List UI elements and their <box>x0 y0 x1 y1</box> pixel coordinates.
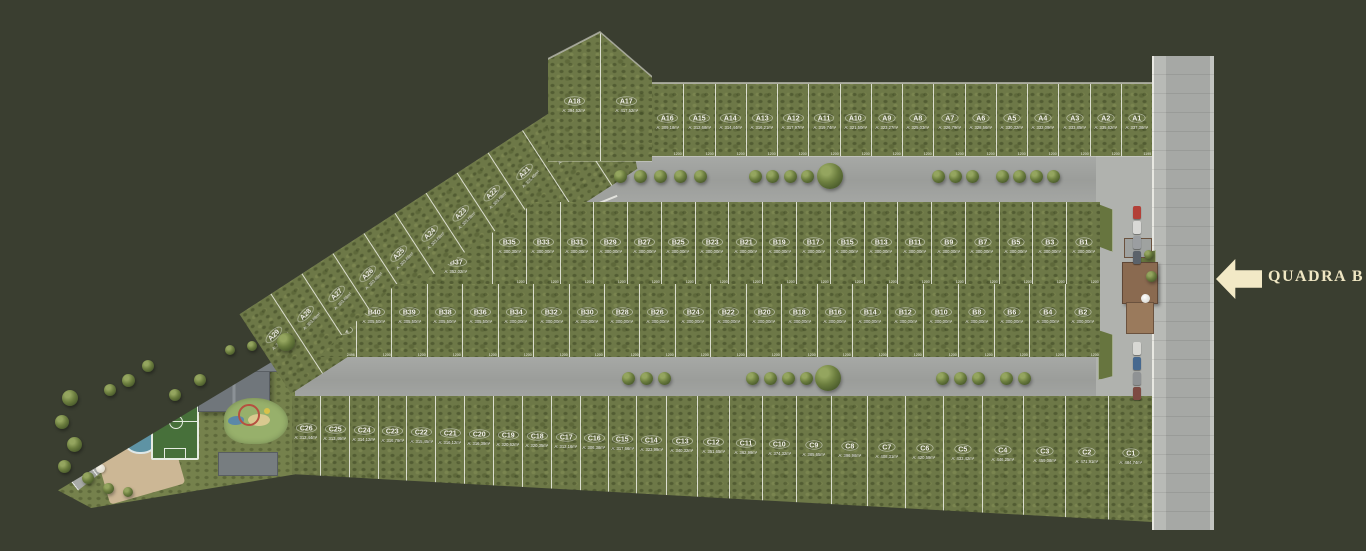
lot-frontage-dimension: 1200 <box>453 353 461 357</box>
lot-area: A: 332,09m² <box>1032 125 1055 130</box>
lot-code: A8 <box>910 113 927 122</box>
lot-area: A: 323,27m² <box>876 125 899 130</box>
lot-code: B25 <box>668 237 689 246</box>
lot-area: A: 300,00m² <box>903 249 926 254</box>
lot-code: B29 <box>600 237 621 246</box>
lot-frontage-dimension: 1200 <box>737 152 745 156</box>
lot-C24[interactable]: C24A: 314,12m² <box>349 396 378 522</box>
lot-area: A: 300,00m² <box>1038 249 1061 254</box>
lot-code: C23 <box>382 426 403 435</box>
tree-icon <box>764 372 777 385</box>
lot-frontage-dimension: 1200 <box>418 353 426 357</box>
tree-icon <box>103 483 114 494</box>
lot-area: A: 300,00m² <box>836 249 859 254</box>
lot-B36[interactable]: B36A: 305,50m²1200 <box>462 284 497 357</box>
lot-B24[interactable]: B24A: 300,00m²12002500 <box>675 284 710 357</box>
lot-code: C11 <box>736 438 756 447</box>
lot-B25[interactable]: B25A: 300,00m²12002500 <box>661 202 695 284</box>
lot-code: C18 <box>527 431 548 440</box>
lot-code: C19 <box>498 430 519 439</box>
c-row-band: C26A: 312,44m²C25A: 313,46m²C24A: 314,12… <box>292 396 1152 522</box>
lot-code: A6 <box>972 113 989 122</box>
lot-B38[interactable]: B38A: 305,50m²1200 <box>427 284 462 357</box>
a-bend-band: A18A: 394,52m²A17A: 417,52m² <box>548 33 652 161</box>
lot-B1[interactable]: B1A: 300,00m²12002500 <box>1066 202 1100 284</box>
lot-frontage-dimension: 1200 <box>987 152 995 156</box>
lot-area: A: 374,32m² <box>768 451 791 456</box>
lot-area: A: 303,68m² <box>364 271 383 290</box>
gatehouse-annex-roof <box>1126 302 1154 334</box>
lot-frontage-dimension: 1200 <box>955 152 963 156</box>
lot-area: A: 325,03m² <box>907 125 930 130</box>
lot-C23[interactable]: C23A: 316,79m² <box>378 396 407 522</box>
lot-frontage-dimension: 1200 <box>893 152 901 156</box>
lot-code: C4 <box>995 445 1012 454</box>
lot-B31[interactable]: B31A: 300,00m²12002500 <box>560 202 594 284</box>
tree-icon <box>1030 170 1043 183</box>
lot-area: A: 300,00m² <box>930 319 953 324</box>
lot-B3[interactable]: B3A: 300,00m²12002500 <box>1032 202 1066 284</box>
lot-area: A: 303,68m² <box>488 191 507 210</box>
lot-A11[interactable]: A11A: 319,74m²1200 <box>808 84 839 156</box>
lot-area: A: 312,44m² <box>295 435 318 440</box>
perimeter-road <box>1152 56 1214 530</box>
umbrella <box>104 398 114 408</box>
lot-code: C15 <box>612 434 633 443</box>
lot-frontage-dimension: 1200 <box>768 152 776 156</box>
lot-area: A: 300,00m² <box>1072 249 1095 254</box>
lot-C12[interactable]: C12A: 351,65m² <box>697 396 729 522</box>
lot-code: A9 <box>878 113 895 122</box>
tree-icon <box>996 170 1009 183</box>
lot-area: A: 300,00m² <box>894 319 917 324</box>
lot-code: C12 <box>703 437 724 446</box>
parked-car <box>1133 206 1141 219</box>
tree-icon <box>954 372 967 385</box>
lot-frontage-dimension: 1200 <box>808 353 816 357</box>
lot-frontage-dimension: 1200 <box>719 280 727 284</box>
lot-A18[interactable]: A18A: 394,52m² <box>548 33 600 161</box>
tree-icon <box>58 460 71 473</box>
lot-C21[interactable]: C21A: 316,12m² <box>435 396 464 522</box>
lot-code: B3 <box>1041 237 1058 246</box>
lot-code: B24 <box>683 307 704 316</box>
gatehouse-dome <box>1141 294 1150 303</box>
quadra-b-arrow-icon[interactable] <box>1216 259 1262 299</box>
lot-code: B1 <box>1075 237 1092 246</box>
lot-frontage-dimension: 1200 <box>737 353 745 357</box>
lot-area: A: 337,38m² <box>1126 125 1149 130</box>
lot-frontage-dimension: 1200 <box>799 152 807 156</box>
tree-icon <box>801 170 814 183</box>
lot-frontage-dimension: 1200 <box>489 353 497 357</box>
lot-area: A: 300,00m² <box>599 249 622 254</box>
lot-code: A17 <box>616 96 637 105</box>
lot-B4[interactable]: B4A: 300,00m²12002500 <box>1029 284 1064 357</box>
tree-icon <box>1000 372 1013 385</box>
tree-icon <box>142 360 154 372</box>
parked-car <box>1133 236 1141 249</box>
lot-code: B19 <box>769 237 790 246</box>
lot-A17[interactable]: A17A: 417,52m² <box>600 33 652 161</box>
lot-A7[interactable]: A7A: 326,79m²1200 <box>933 84 964 156</box>
lot-B23[interactable]: B23A: 300,00m²12002500 <box>695 202 729 284</box>
lot-area: A: 300,00m² <box>717 319 740 324</box>
lot-B34[interactable]: B34A: 300,00m²12002500 <box>498 284 533 357</box>
lot-A1[interactable]: A1A: 337,38m²1195 <box>1121 84 1152 156</box>
lot-code: A7 <box>941 113 958 122</box>
lot-code: C9 <box>806 440 823 449</box>
lot-area: A: 420,59m² <box>913 455 936 460</box>
lot-frontage-dimension: 1200 <box>1091 353 1099 357</box>
lot-A16[interactable]: A16A: 309,18m²1200 <box>652 84 683 156</box>
lot-B19[interactable]: B19A: 300,00m²12002500 <box>762 202 796 284</box>
tree-icon <box>800 372 813 385</box>
lot-code: A16 <box>657 113 678 122</box>
lot-B7[interactable]: B7A: 300,00m²12002500 <box>965 202 999 284</box>
lot-C7[interactable]: C7A: 408,31m² <box>867 396 904 522</box>
lot-C6[interactable]: C6A: 420,59m² <box>905 396 943 522</box>
lot-code: B35 <box>499 237 520 246</box>
lot-code: B16 <box>824 307 845 316</box>
lot-A10[interactable]: A10A: 321,50m²1200 <box>840 84 871 156</box>
lot-C17[interactable]: C17A: 312,16m² <box>551 396 579 522</box>
lot-area: A: 300,00m² <box>532 249 555 254</box>
lot-C15[interactable]: C15A: 317,66m² <box>608 396 637 522</box>
lot-area: A: 300,00m² <box>505 319 528 324</box>
lot-code: B4 <box>1039 307 1056 316</box>
lot-A13[interactable]: A13A: 316,21m²1200 <box>746 84 777 156</box>
lot-frontage-dimension: 1200 <box>618 280 626 284</box>
lot-frontage-dimension: 1200 <box>584 280 592 284</box>
lot-B29[interactable]: B29A: 300,00m²12002500 <box>593 202 627 284</box>
lot-area: A: 326,79m² <box>938 125 961 130</box>
lot-B18[interactable]: B18A: 300,00m²12002500 <box>781 284 816 357</box>
lot-area: A: 362,99m² <box>735 450 758 455</box>
lot-frontage-dimension: 1200 <box>701 353 709 357</box>
tree-icon <box>82 472 94 484</box>
lot-area: A: 300,00m² <box>667 249 690 254</box>
lot-C3[interactable]: C3A: 459,08m² <box>1023 396 1065 522</box>
lot-B28[interactable]: B28A: 300,00m²12002500 <box>604 284 639 357</box>
tree-icon <box>62 390 78 406</box>
lot-area: A: 306,38m² <box>583 445 606 450</box>
lot-B12[interactable]: B12A: 300,00m²12002500 <box>887 284 922 357</box>
lot-code: C21 <box>440 428 461 437</box>
lot-area: A: 316,39m² <box>468 441 491 446</box>
lot-code: C20 <box>469 429 490 438</box>
lot-area: A: 396,98m² <box>839 453 862 458</box>
lot-C16[interactable]: C16A: 306,38m² <box>580 396 608 522</box>
tree-icon <box>1047 170 1060 183</box>
lot-C2[interactable]: C2A: 471,91m² <box>1065 396 1108 522</box>
tree-icon <box>277 333 295 351</box>
lot-area: A: 300,00m² <box>1036 319 1059 324</box>
lot-area: A: 305,50m² <box>469 319 492 324</box>
umbrella <box>96 464 105 473</box>
lot-area: A: 459,08m² <box>1033 458 1056 463</box>
lot-code: C16 <box>584 433 605 442</box>
lot-A15[interactable]: A15A: 312,68m²1200 <box>683 84 714 156</box>
lot-area: A: 300,00m² <box>788 319 811 324</box>
lot-frontage-dimension: 1200 <box>914 353 922 357</box>
lot-area: A: 300,00m² <box>575 319 598 324</box>
lot-frontage-dimension: 1200 <box>652 280 660 284</box>
lot-code: A2 <box>1097 113 1114 122</box>
lot-code: C25 <box>325 424 346 433</box>
lot-B2[interactable]: B2A: 300,00m²12002500 <box>1065 284 1100 357</box>
lot-frontage-dimension: 1195 <box>1143 152 1151 156</box>
lot-area: A: 446,25m² <box>992 457 1015 462</box>
tree-icon <box>936 372 949 385</box>
lot-A3[interactable]: A3A: 333,85m²1200 <box>1058 84 1089 156</box>
lot-C18[interactable]: C18A: 320,35m² <box>522 396 551 522</box>
lot-code: A10 <box>845 113 866 122</box>
lot-B33[interactable]: B33A: 300,00m²12002500 <box>526 202 560 284</box>
lot-frontage-dimension: 1200 <box>560 353 568 357</box>
playground-yellow-toy <box>264 408 270 414</box>
lot-code: A18 <box>564 96 585 105</box>
lot-B11[interactable]: B11A: 300,00m²12002500 <box>897 202 931 284</box>
lot-area: A: 484,74m² <box>1119 460 1142 465</box>
lot-frontage-dimension: 1200 <box>990 280 998 284</box>
lot-area: A: 303,68m² <box>395 251 414 270</box>
lot-frontage-dimension: 1200 <box>1057 280 1065 284</box>
lot-B26[interactable]: B26A: 300,00m²12002500 <box>639 284 674 357</box>
tree-icon <box>817 163 843 189</box>
lot-code: B23 <box>702 237 723 246</box>
lot-code: C7 <box>878 442 895 451</box>
tree-icon <box>966 170 979 183</box>
lot-B6[interactable]: B6A: 300,00m²12002500 <box>994 284 1029 357</box>
lot-C14[interactable]: C14A: 323,99m² <box>636 396 666 522</box>
tree-icon <box>225 345 235 355</box>
lot-A6[interactable]: A6A: 328,56m²1200 <box>965 84 996 156</box>
leisure-area <box>58 348 295 508</box>
lot-area: A: 300,00m² <box>633 249 656 254</box>
tree-icon <box>104 384 116 396</box>
lot-code: C1 <box>1122 448 1139 457</box>
parked-car <box>1133 221 1141 234</box>
tree-icon <box>640 372 653 385</box>
lot-C19[interactable]: C19A: 320,62m² <box>493 396 522 522</box>
lot-frontage-dimension: 1200 <box>753 280 761 284</box>
lot-B30[interactable]: B30A: 300,00m²12002500 <box>569 284 604 357</box>
parked-car <box>1133 342 1141 355</box>
lot-C26[interactable]: C26A: 312,44m² <box>292 396 320 522</box>
lot-C10[interactable]: C10A: 374,32m² <box>762 396 796 522</box>
lot-area: A: 300,00m² <box>802 249 825 254</box>
lot-area: A: 335,62m² <box>1094 125 1117 130</box>
tree-icon <box>122 374 135 387</box>
lot-code: B38 <box>435 307 456 316</box>
lot-frontage-dimension: 1200 <box>630 353 638 357</box>
lot-frontage-dimension: 1200 <box>787 280 795 284</box>
lot-code: B21 <box>735 237 756 246</box>
entrance-green-island <box>1098 204 1113 252</box>
lot-B10[interactable]: B10A: 300,00m²12002500 <box>923 284 958 357</box>
lot-B14[interactable]: B14A: 300,00m²12002500 <box>852 284 887 357</box>
lot-area: A: 385,65m² <box>803 452 826 457</box>
service-building-roof <box>218 452 278 476</box>
tree-icon <box>1144 250 1153 259</box>
lot-frontage-dimension: 1200 <box>666 353 674 357</box>
lot-C9[interactable]: C9A: 385,65m² <box>796 396 831 522</box>
parked-car <box>1133 372 1141 385</box>
lot-C11[interactable]: C11A: 362,99m² <box>729 396 762 522</box>
lot-area: A: 303,68m² <box>457 211 476 230</box>
lot-code: A1 <box>1128 113 1145 122</box>
umbrella <box>92 432 102 442</box>
lot-A14[interactable]: A14A: 314,44m²1200 <box>715 84 746 156</box>
lot-area: A: 300,00m² <box>1005 249 1028 254</box>
tree-icon <box>614 170 627 183</box>
lot-area: A: 316,79m² <box>381 438 404 443</box>
lot-code: C3 <box>1036 446 1053 455</box>
lot-B13[interactable]: B13A: 300,00m²12002500 <box>864 202 898 284</box>
tree-icon <box>169 389 181 401</box>
lot-code: C22 <box>411 427 432 436</box>
lot-code: B32 <box>541 307 562 316</box>
lot-code: B39 <box>399 307 420 316</box>
lot-area: A: 300,30m² <box>498 249 521 254</box>
lot-code: A25 <box>388 243 409 264</box>
lot-B8[interactable]: B8A: 300,00m²12002500 <box>958 284 993 357</box>
lot-frontage-dimension: 1200 <box>855 280 863 284</box>
lot-area: A: 433,42m² <box>952 456 975 461</box>
lot-frontage-dimension: 1200 <box>674 152 682 156</box>
lot-frontage-dimension: 1200 <box>956 280 964 284</box>
lot-B32[interactable]: B32A: 300,00m²12002500 <box>533 284 568 357</box>
tree-icon <box>67 437 82 452</box>
lot-frontage-dimension: 1200 <box>551 280 559 284</box>
lot-frontage-dimension: 1200 <box>1023 280 1031 284</box>
lot-code: B8 <box>968 307 985 316</box>
lot-code: C13 <box>672 436 693 445</box>
lot-code: A3 <box>1066 113 1083 122</box>
lot-code: B5 <box>1008 237 1025 246</box>
lot-B20[interactable]: B20A: 300,00m²12002500 <box>746 284 781 357</box>
lot-area: A: 328,56m² <box>969 125 992 130</box>
tree-icon <box>694 170 707 183</box>
lot-B21[interactable]: B21A: 300,00m²12002500 <box>728 202 762 284</box>
lot-A4[interactable]: A4A: 332,09m²1200 <box>1027 84 1058 156</box>
lot-area: A: 317,97m² <box>782 125 805 130</box>
lot-C4[interactable]: C4A: 446,25m² <box>982 396 1023 522</box>
tree-icon <box>949 170 962 183</box>
lot-code: B33 <box>533 237 554 246</box>
lot-area: A: 316,12m² <box>439 440 462 445</box>
lot-C5[interactable]: C5A: 433,42m² <box>943 396 982 522</box>
lot-frontage-dimension: 1200 <box>1056 353 1064 357</box>
lot-code: C2 <box>1078 447 1095 456</box>
lot-code: B26 <box>647 307 668 316</box>
tree-icon <box>932 170 945 183</box>
lot-area: A: 333,85m² <box>1063 125 1086 130</box>
lot-C8[interactable]: C8A: 396,98m² <box>831 396 867 522</box>
lot-area: A: 351,65m² <box>702 449 725 454</box>
parked-car <box>1133 357 1141 370</box>
lot-area: A: 300,00m² <box>859 319 882 324</box>
lot-code: A15 <box>689 113 710 122</box>
lot-B22[interactable]: B22A: 300,00m²12002500 <box>710 284 745 357</box>
lot-B27[interactable]: B27A: 300,00m²12002500 <box>627 202 661 284</box>
lot-area: A: 314,12m² <box>352 437 375 442</box>
quadra-b-label[interactable]: QUADRA B <box>1268 268 1364 286</box>
lot-B39[interactable]: B39A: 305,50m²1200 <box>391 284 426 357</box>
sidewalk-seams <box>1152 56 1214 530</box>
lot-area: A: 417,52m² <box>615 108 638 113</box>
lot-area: A: 300,00m² <box>971 249 994 254</box>
lot-code: B28 <box>612 307 633 316</box>
lot-area: A: 323,99m² <box>640 447 663 452</box>
lot-C1[interactable]: C1A: 484,74m² <box>1108 396 1152 522</box>
lot-A8[interactable]: A8A: 325,03m²1200 <box>902 84 933 156</box>
lot-code: B2 <box>1074 307 1091 316</box>
lot-code: C10 <box>769 439 790 448</box>
lot-B16[interactable]: B16A: 300,00m²12002500 <box>817 284 852 357</box>
lot-area: A: 305,50m² <box>363 319 386 324</box>
lot-A2[interactable]: A2A: 335,62m²1200 <box>1090 84 1121 156</box>
tree-icon <box>1018 372 1031 385</box>
tree-icon <box>194 374 206 386</box>
lot-area: A: 312,16m² <box>555 444 578 449</box>
lot-A12[interactable]: A12A: 317,97m²1200 <box>777 84 808 156</box>
tree-icon <box>815 365 841 391</box>
lot-area: A: 352,02m² <box>445 269 468 274</box>
lot-code: A13 <box>752 113 773 122</box>
lot-code: B34 <box>506 307 527 316</box>
lot-code: A26 <box>357 264 378 285</box>
lot-area: A: 394,52m² <box>563 108 586 113</box>
gatehouse-roof <box>1122 262 1158 304</box>
lot-C25[interactable]: C25A: 313,46m² <box>320 396 349 522</box>
lot-B17[interactable]: B17A: 300,00m²12002500 <box>796 202 830 284</box>
lot-B5[interactable]: B5A: 300,00m²12002500 <box>999 202 1033 284</box>
playground-red-track <box>238 404 260 426</box>
lot-code: C6 <box>916 443 933 452</box>
lot-frontage-dimension: 1200 <box>1020 353 1028 357</box>
lot-code: B27 <box>634 237 655 246</box>
lot-frontage-dimension: 1200 <box>924 152 932 156</box>
lot-B15[interactable]: B15A: 300,00m²12002500 <box>830 202 864 284</box>
lot-A5[interactable]: A5A: 330,32m²1200 <box>996 84 1027 156</box>
umbrella <box>96 414 106 424</box>
lot-code: A21 <box>513 162 534 183</box>
a-top-band: A16A: 309,18m²1200A15A: 312,68m²1200A14A… <box>652 84 1152 156</box>
lot-B9[interactable]: B9A: 300,00m²12002500 <box>931 202 965 284</box>
lot-area: A: 300,00m² <box>646 319 669 324</box>
lot-C20[interactable]: C20A: 316,39m² <box>464 396 493 522</box>
lot-code: A24 <box>419 223 440 244</box>
field-goal-box <box>164 448 186 458</box>
lot-area: A: 300,00m² <box>701 249 724 254</box>
lot-frontage-dimension: 1200 <box>862 152 870 156</box>
lot-area: A: 312,68m² <box>688 125 711 130</box>
lot-C22[interactable]: C22A: 315,45m² <box>406 396 435 522</box>
lot-code: B17 <box>803 237 824 246</box>
lot-code: C17 <box>556 432 577 441</box>
lot-area: A: 317,66m² <box>611 446 634 451</box>
lot-area: A: 303,68m² <box>333 291 352 310</box>
lot-code: B11 <box>905 237 925 246</box>
tree-icon <box>654 170 667 183</box>
lot-C13[interactable]: C13A: 340,32m² <box>666 396 697 522</box>
lot-code: A27 <box>326 284 347 305</box>
lot-code: B14 <box>860 307 881 316</box>
lot-A9[interactable]: A9A: 323,27m²1200 <box>871 84 902 156</box>
lot-area: A: 321,50m² <box>844 125 867 130</box>
